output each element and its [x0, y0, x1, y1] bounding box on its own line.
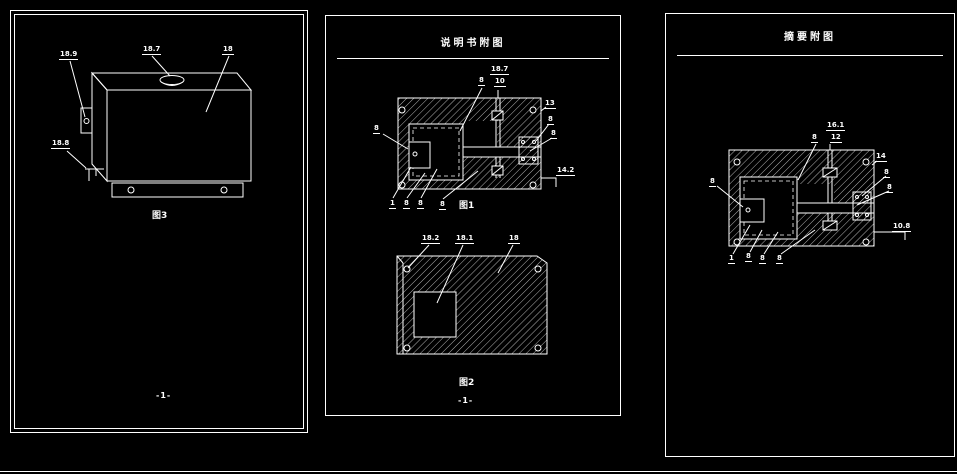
figure3-caption: 图3	[152, 212, 167, 221]
sheet-abstract-figure: 摘要附图	[665, 13, 955, 457]
description-page-number: -1-	[458, 397, 473, 405]
sheet-figure3: 18.918.71818.8 图3 -1-	[10, 10, 308, 433]
ref-label-18.1: 18.1	[455, 235, 474, 244]
ref-label-18.8: 18.8	[51, 140, 70, 149]
ref-label-8: 8	[886, 184, 893, 193]
ref-label-8: 8	[759, 255, 766, 264]
ref-label-14: 14	[875, 153, 887, 162]
ref-label-18.2: 18.2	[421, 235, 440, 244]
figure3-page-number: -1-	[156, 392, 171, 400]
ref-label-16.1: 16.1	[826, 122, 845, 131]
ref-label-8: 8	[709, 178, 716, 187]
ref-label-8: 8	[776, 255, 783, 264]
figure1-caption: 图1	[459, 202, 474, 211]
ref-label-18.7: 18.7	[142, 46, 161, 55]
sheet-description-figures: 说明书附图	[325, 15, 621, 416]
ref-label-12: 12	[830, 134, 842, 143]
figure2-labels: 18.218.118	[326, 16, 620, 415]
ref-label-8: 8	[745, 253, 752, 262]
ref-label-18: 18	[508, 235, 520, 244]
abstract-figure-labels: 816.11214888188810.8	[666, 14, 954, 456]
figure2-caption: 图2	[459, 379, 474, 388]
ref-label-8: 8	[811, 134, 818, 143]
ref-label-1: 1	[728, 255, 735, 264]
ref-label-18: 18	[222, 46, 234, 55]
ref-label-8: 8	[883, 169, 890, 178]
viewport-bottom-edge	[0, 471, 957, 472]
ref-label-10.8: 10.8	[892, 223, 911, 232]
ref-label-18.9: 18.9	[59, 51, 78, 60]
figure3-labels: 18.918.71818.8	[11, 11, 307, 432]
cad-sheet-set: 18.918.71818.8 图3 -1- 说明书附图	[0, 0, 957, 474]
